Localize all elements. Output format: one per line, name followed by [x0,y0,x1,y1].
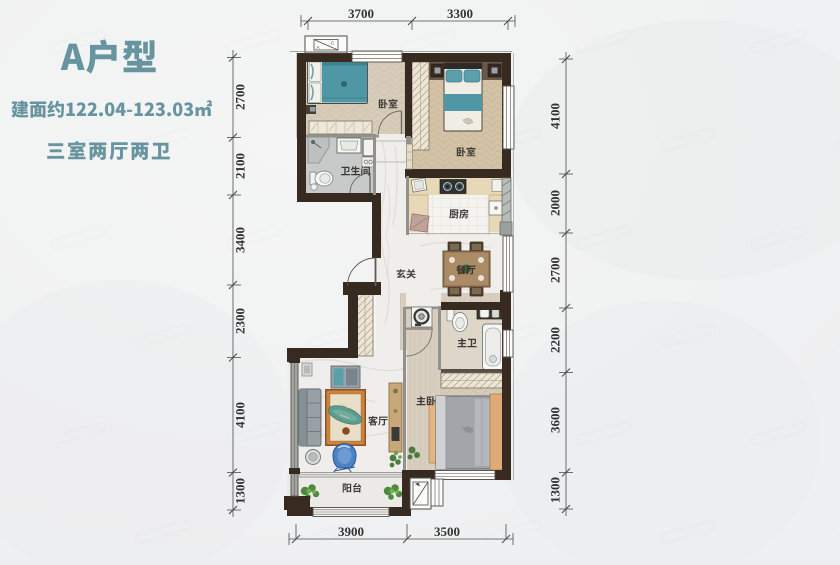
svg-text:2000: 2000 [548,190,563,216]
svg-text:3500: 3500 [434,524,460,539]
svg-text:3700: 3700 [348,6,374,21]
svg-text:2200: 2200 [548,327,563,353]
svg-text:3600: 3600 [548,407,563,433]
svg-text:4100: 4100 [548,103,563,129]
svg-text:3300: 3300 [447,6,473,21]
svg-text:3400: 3400 [233,227,248,253]
svg-text:1300: 1300 [548,477,563,503]
svg-text:2700: 2700 [233,84,248,110]
svg-text:2700: 2700 [548,257,563,283]
svg-text:2100: 2100 [233,153,248,179]
svg-text:A: A [317,45,320,50]
svg-text:4100: 4100 [233,402,248,428]
svg-text:3900: 3900 [338,524,364,539]
svg-text:1300: 1300 [233,478,248,504]
svg-text:2300: 2300 [233,308,248,334]
